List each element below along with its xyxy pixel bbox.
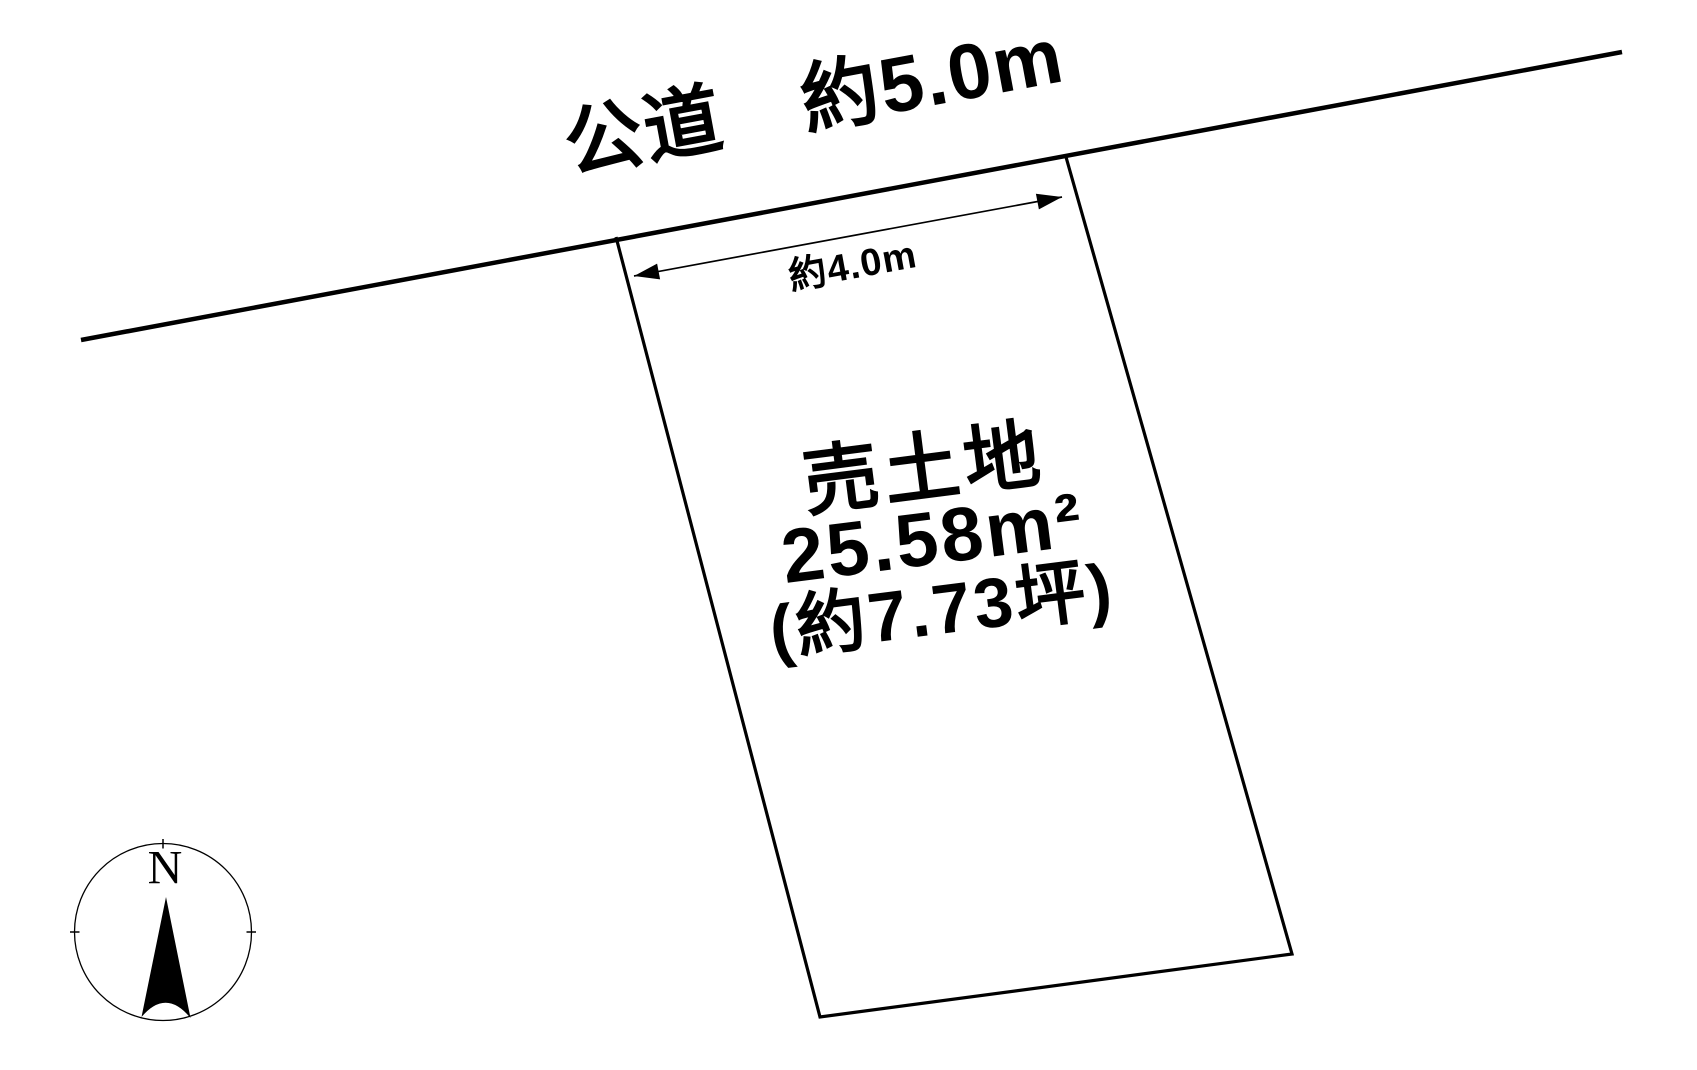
north-label: N [148,841,183,896]
dimension-arrowhead-right [1036,194,1062,210]
land-plot-diagram: 公道 約5.0m 約4.0m 売土地 25.58m² (約7.73坪) N [0,0,1697,1070]
dimension-arrowhead-left [634,264,660,280]
parcel-label-block: 売土地 25.58m² (約7.73坪) [747,413,1118,667]
compass-needle [142,897,191,1018]
